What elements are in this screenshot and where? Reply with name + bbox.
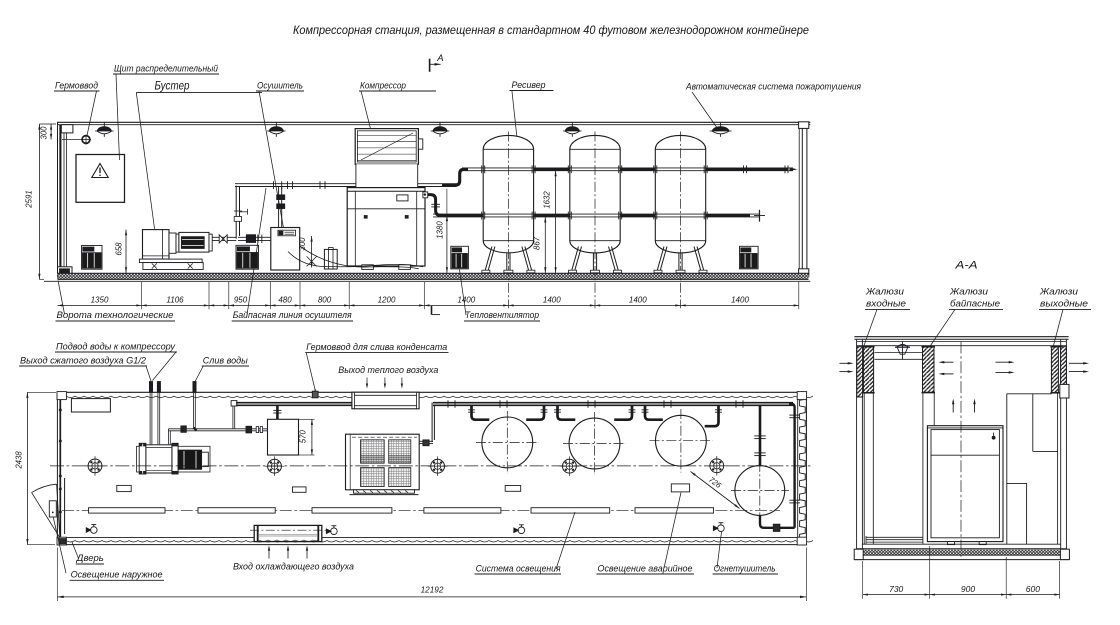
svg-text:Освещение наружное: Освещение наружное [71,570,163,580]
svg-text:1380: 1380 [435,221,444,239]
svg-text:выходные: выходные [1040,299,1088,309]
svg-text:Подвод воды к компрессору: Подвод воды к компрессору [56,341,176,351]
svg-text:Дверь: Дверь [76,553,104,563]
svg-text:1200: 1200 [378,296,396,305]
svg-text:2591: 2591 [25,190,34,208]
svg-text:Ворота технологические: Ворота технологические [57,310,174,320]
svg-text:1350: 1350 [91,296,109,305]
svg-text:Автоматическая система пожарот: Автоматическая система пожаротушения [685,81,861,91]
svg-text:12192: 12192 [421,585,444,594]
svg-text:480: 480 [278,296,292,305]
svg-text:А-А: А-А [954,260,977,272]
svg-text:Жалюзи: Жалюзи [865,287,904,297]
svg-text:900: 900 [961,584,975,594]
svg-text:Освещение аварийное: Освещение аварийное [598,563,693,573]
svg-text:Вход охлаждающего воздуха: Вход охлаждающего воздуха [233,561,354,571]
svg-text:570: 570 [298,430,307,444]
svg-text:Жалюзи: Жалюзи [1039,287,1078,297]
svg-text:Байпасная линия осушителя: Байпасная линия осушителя [233,310,352,320]
svg-text:1400: 1400 [629,296,647,305]
svg-text:Жалюзи: Жалюзи [949,287,988,297]
svg-text:1400: 1400 [731,296,749,305]
svg-text:730: 730 [889,584,903,594]
svg-text:Щит распределительный: Щит распределительный [114,63,218,73]
svg-text:1400: 1400 [457,296,475,305]
svg-text:Гермоввод: Гермоввод [55,80,98,90]
svg-text:Выход сжатого воздуха G1/2: Выход сжатого воздуха G1/2 [20,355,147,365]
svg-text:Слив воды: Слив воды [203,355,248,365]
svg-text:байпасные: байпасные [950,299,1000,309]
svg-text:Компрессорная станция, размеще: Компрессорная станция, размещенная в ста… [293,23,809,37]
svg-text:Огнетушитель: Огнетушитель [714,563,776,573]
svg-text:300: 300 [39,126,48,140]
svg-text:1106: 1106 [166,296,184,305]
svg-text:Осушитель: Осушитель [257,80,303,90]
svg-text:867: 867 [533,236,542,250]
svg-text:Тепловентилятор: Тепловентилятор [465,310,539,320]
svg-text:1632: 1632 [543,191,552,209]
svg-text:Компрессор: Компрессор [360,80,406,90]
svg-text:2438: 2438 [15,451,24,470]
svg-text:950: 950 [234,296,248,305]
svg-text:Система освещения: Система освещения [476,563,561,573]
svg-text:800: 800 [318,296,332,305]
svg-text:Выход теплого воздуха: Выход теплого воздуха [338,365,438,375]
svg-text:1400: 1400 [543,296,561,305]
svg-text:А: А [436,53,443,64]
svg-text:Гермоввод для слива конденсата: Гермоввод для слива конденсата [306,342,447,352]
svg-text:Бустер: Бустер [155,80,190,93]
svg-text:входные: входные [866,299,906,309]
svg-text:600: 600 [1026,584,1040,594]
svg-text:300: 300 [298,237,307,251]
svg-text:Ресивер: Ресивер [512,80,546,90]
svg-text:658: 658 [115,242,124,256]
